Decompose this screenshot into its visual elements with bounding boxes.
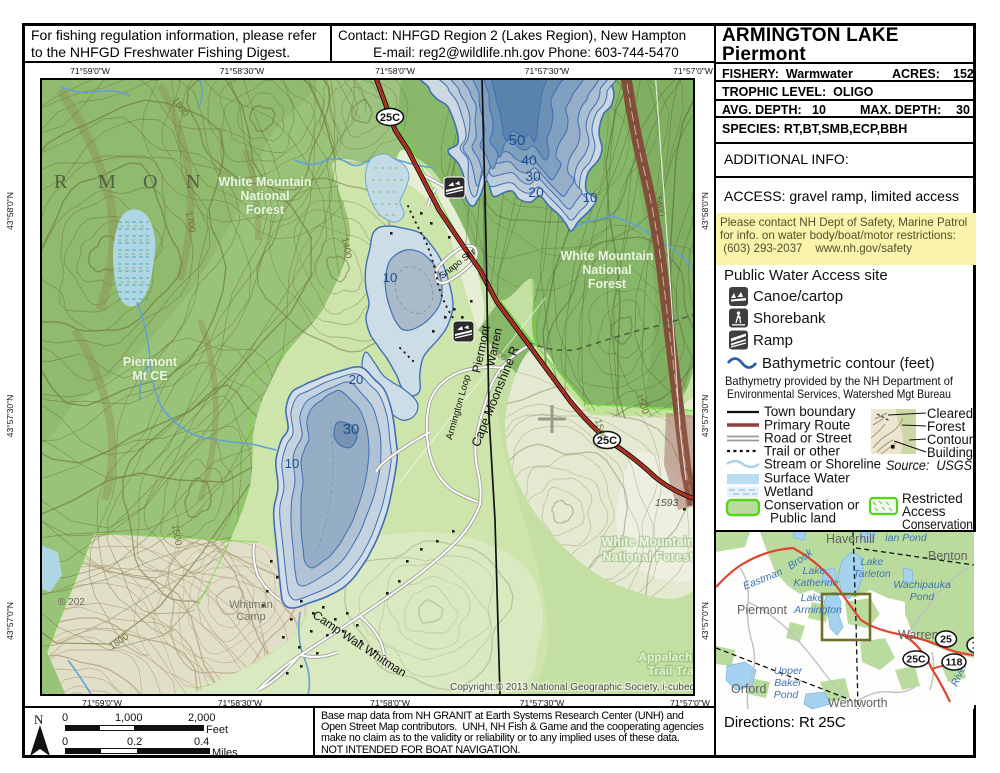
svg-text:Wachipauka: Wachipauka (893, 579, 951, 591)
svg-text:Orford: Orford (731, 682, 766, 696)
svg-text:Source: USGS: Source: USGS (886, 457, 973, 473)
svg-text:Environmental Services, Waters: Environmental Services, Watershed Mgt Bu… (727, 387, 951, 401)
svg-text:Conservation: Conservation (902, 517, 973, 530)
svg-text:Ramp: Ramp (753, 332, 793, 349)
svg-text:Canoe/cartop: Canoe/cartop (753, 288, 843, 305)
svg-text:Stream or Shoreline: Stream or Shoreline (764, 457, 881, 472)
svg-text:Piermont: Piermont (737, 603, 788, 617)
svg-text:Pond: Pond (774, 689, 800, 701)
svg-text:Tarleton: Tarleton (853, 568, 891, 580)
svg-text:Miles: Miles (212, 747, 238, 759)
svg-text:Armington: Armington (793, 604, 842, 616)
svg-text:118: 118 (946, 657, 963, 669)
svg-text:Katherine: Katherine (794, 577, 839, 589)
svg-text:Feet: Feet (206, 724, 228, 736)
svg-text:Lake: Lake (801, 592, 824, 604)
svg-text:ian Pond: ian Pond (885, 532, 928, 544)
svg-text:0.4: 0.4 (194, 736, 209, 748)
svg-text:Bathymetry provided by the NH: Bathymetry provided by the NH Department… (725, 374, 954, 388)
svg-text:Shorebank: Shorebank (753, 310, 826, 327)
svg-text:0: 0 (62, 736, 68, 748)
svg-text:Haverhill: Haverhill (826, 532, 875, 546)
svg-text:Pond: Pond (910, 591, 936, 603)
svg-text:11: 11 (971, 640, 974, 652)
svg-text:Benton: Benton (928, 549, 968, 563)
svg-text:Warren: Warren (898, 628, 939, 642)
svg-text:0.2: 0.2 (127, 736, 142, 748)
svg-text:2,000: 2,000 (188, 712, 216, 724)
svg-text:0: 0 (62, 712, 68, 724)
svg-text:Bathymetric contour (feet): Bathymetric contour (feet) (762, 355, 935, 372)
svg-text:25C: 25C (906, 654, 926, 666)
svg-text:N: N (34, 712, 44, 727)
svg-text:Lake: Lake (803, 565, 826, 577)
svg-text:Public land: Public land (770, 511, 836, 526)
svg-text:Public Water Access site: Public Water Access site (724, 267, 888, 284)
svg-text:Baker: Baker (774, 677, 802, 689)
svg-text:Upper: Upper (774, 665, 803, 677)
svg-text:Lake: Lake (861, 556, 884, 568)
svg-text:1,000: 1,000 (115, 712, 143, 724)
svg-text:25: 25 (940, 634, 952, 646)
